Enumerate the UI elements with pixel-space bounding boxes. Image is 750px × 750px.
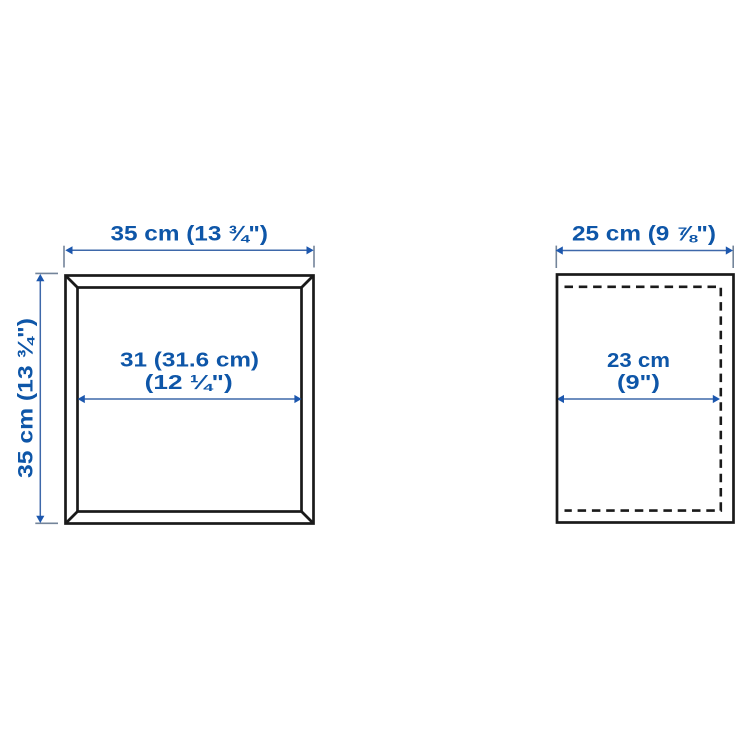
svg-text:35 cm (13 ¾"): 35 cm (13 ¾")	[13, 318, 38, 478]
svg-text:25 cm (9 ⅞"): 25 cm (9 ⅞")	[572, 221, 716, 246]
svg-text:(9"): (9")	[617, 372, 660, 394]
svg-text:23 cm: 23 cm	[607, 350, 670, 372]
svg-text:31 (31.6 cm): 31 (31.6 cm)	[120, 350, 259, 372]
svg-text:(12 ¼"): (12 ¼")	[145, 372, 233, 394]
svg-text:35 cm (13 ¾"): 35 cm (13 ¾")	[111, 221, 269, 246]
